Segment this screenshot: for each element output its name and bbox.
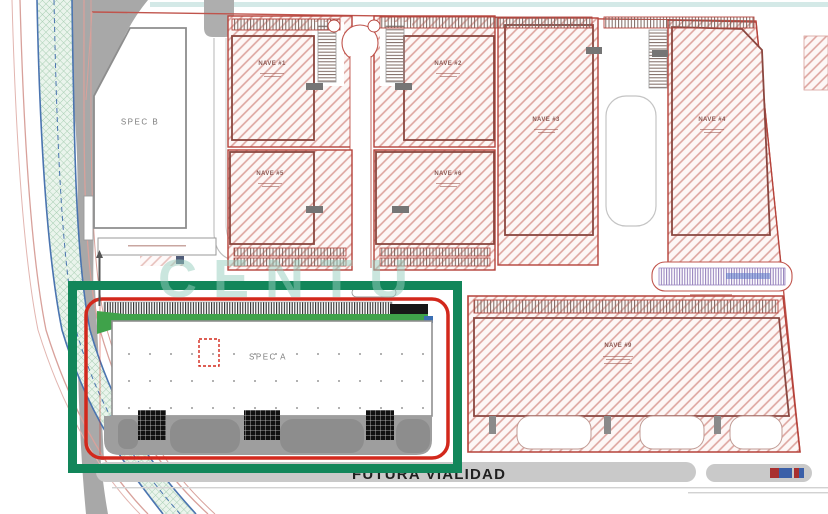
parking-column xyxy=(649,30,667,88)
label-nave-1: NAVE #1 xyxy=(258,61,285,67)
label-nave-3: NAVE #3 xyxy=(532,117,559,123)
building-nave-6 xyxy=(376,152,494,244)
parcel-nave-9 xyxy=(468,296,800,452)
label-nave-2: NAVE #2 xyxy=(434,61,461,67)
building-nave-1 xyxy=(232,36,314,140)
label-nave-6: NAVE #6 xyxy=(434,171,461,177)
label-nave-9: NAVE #9 xyxy=(604,343,631,349)
parking-column xyxy=(386,26,404,82)
nave-sublabel-lines xyxy=(436,180,460,187)
building-nave-2 xyxy=(404,36,494,140)
tree-circle xyxy=(368,20,380,32)
nave-sublabel-lines xyxy=(603,353,633,364)
neighbor-hatch-strip xyxy=(804,36,828,90)
tree-circle xyxy=(328,20,340,32)
label-spec-b: SPEC B xyxy=(121,118,159,127)
nave-sublabel-lines xyxy=(700,126,724,133)
watermark: CENTU xyxy=(158,248,424,310)
scale-bar xyxy=(770,468,779,478)
teal-utility-line xyxy=(150,2,828,7)
building-nave-9 xyxy=(474,318,789,416)
building-nave-5 xyxy=(230,152,314,244)
site-plan: SPEC B SPEC A NAVE #1 NAVE #2 NAVE #3 NA… xyxy=(0,0,828,514)
parking-column xyxy=(318,26,336,82)
label-nave-4: NAVE #4 xyxy=(698,117,725,123)
nave-sublabel-lines xyxy=(534,126,558,133)
nave-sublabel-lines xyxy=(436,70,460,77)
nave-sublabel-lines xyxy=(258,180,282,187)
label-nave-5: NAVE #5 xyxy=(256,171,283,177)
nave-sublabel-lines xyxy=(260,70,284,77)
street-parking-row xyxy=(652,262,792,296)
